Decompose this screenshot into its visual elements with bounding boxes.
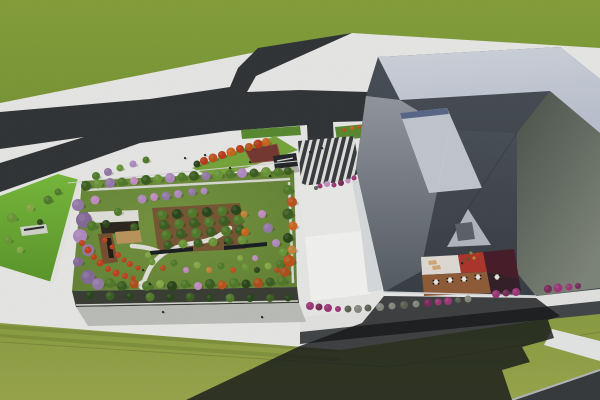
chair — [475, 278, 477, 280]
tree-highlight — [206, 280, 211, 285]
tree-highlight — [576, 284, 579, 287]
tree-highlight — [85, 247, 88, 250]
tree-highlight — [107, 293, 111, 297]
tree-highlight — [131, 178, 135, 182]
tree-highlight — [160, 221, 165, 226]
tree-highlight — [219, 152, 223, 156]
tree-highlight — [265, 263, 268, 266]
tree-highlight — [343, 129, 345, 131]
tree-highlight — [143, 157, 146, 160]
tree-highlight — [401, 302, 405, 306]
tree-highlight — [201, 188, 204, 191]
person — [269, 175, 271, 177]
tree-highlight — [106, 267, 109, 270]
tree-highlight — [278, 277, 283, 282]
tree-highlight — [336, 307, 339, 310]
tree-highlight — [456, 298, 459, 301]
tree-highlight — [275, 268, 278, 271]
tree-highlight — [201, 158, 205, 162]
tree-highlight — [228, 149, 232, 153]
person — [179, 248, 181, 250]
tree-highlight — [377, 304, 381, 308]
tree-highlight — [92, 255, 95, 258]
tree-highlight — [470, 252, 471, 253]
tree-highlight — [175, 220, 180, 225]
tree-highlight — [205, 218, 210, 223]
tree-highlight — [218, 207, 223, 212]
tree-highlight — [503, 290, 506, 293]
tree-highlight — [255, 268, 258, 271]
tree-highlight — [207, 228, 212, 233]
tree-highlight — [75, 231, 81, 237]
tree-highlight — [8, 214, 13, 219]
tree-highlight — [142, 176, 147, 181]
tree-highlight — [95, 181, 99, 185]
tree-highlight — [78, 214, 85, 221]
tree-highlight — [346, 179, 348, 181]
chair — [438, 283, 440, 285]
parasol-table — [461, 276, 468, 281]
tree-highlight — [365, 305, 368, 308]
tree-highlight — [74, 258, 79, 263]
tree-highlight — [203, 173, 207, 177]
tree-highlight — [166, 174, 171, 179]
pavilion-roof — [88, 210, 139, 223]
person — [309, 151, 311, 153]
tree-highlight — [467, 258, 468, 259]
tree-highlight — [307, 303, 311, 307]
chair — [466, 280, 468, 282]
person — [162, 311, 164, 313]
parasol-table — [433, 279, 440, 284]
tree-highlight — [227, 295, 231, 299]
tree-highlight — [222, 227, 227, 232]
courtyard-door — [455, 222, 475, 241]
tree-highlight — [103, 238, 105, 240]
tree-highlight — [236, 226, 241, 231]
tree-highlight — [345, 306, 348, 309]
tree-highlight — [162, 231, 167, 236]
chair — [447, 278, 449, 280]
tree-highlight — [285, 295, 288, 298]
tree-highlight — [254, 279, 259, 284]
tree-highlight — [513, 289, 517, 293]
tree-highlight — [80, 241, 83, 244]
tree-highlight — [318, 184, 320, 186]
tree-highlight — [477, 253, 478, 254]
tree-highlight — [127, 293, 131, 297]
tree-highlight — [130, 161, 133, 164]
tree-highlight — [139, 196, 143, 200]
tree-highlight — [179, 174, 183, 178]
chair — [461, 277, 463, 279]
tree-highlight — [246, 144, 250, 148]
tree-highlight — [157, 281, 161, 285]
tree-highlight — [288, 198, 293, 203]
tree-highlight — [194, 161, 197, 164]
tree-highlight — [273, 240, 277, 244]
tree-highlight — [339, 181, 342, 184]
tree-highlight — [94, 280, 99, 285]
facade-ground-shadow — [76, 303, 306, 326]
person — [184, 157, 186, 159]
tree-highlight — [195, 283, 199, 287]
tree-highlight — [45, 197, 49, 201]
tree-highlight — [267, 279, 271, 283]
person — [249, 161, 251, 163]
tree-highlight — [262, 168, 267, 173]
tree-highlight — [238, 169, 243, 174]
tree-highlight — [173, 210, 178, 215]
tree-highlight — [97, 260, 100, 263]
tree-highlight — [116, 253, 119, 256]
tree-highlight — [5, 237, 9, 241]
tree-highlight — [83, 272, 89, 278]
parasol-table — [494, 274, 501, 279]
tree-highlight — [566, 284, 569, 287]
tree-highlight — [146, 253, 149, 256]
tree-highlight — [210, 239, 214, 243]
tree-highlight — [119, 179, 123, 183]
tree-highlight — [555, 285, 559, 289]
tree-highlight — [225, 238, 229, 242]
tree-highlight — [241, 211, 244, 214]
tree-highlight — [242, 229, 246, 233]
tree-highlight — [247, 295, 251, 299]
tree-highlight — [242, 264, 245, 267]
tree-highlight — [275, 169, 279, 173]
tree-highlight — [284, 234, 289, 239]
tree-highlight — [284, 210, 289, 215]
tree-highlight — [315, 187, 317, 189]
person — [261, 316, 263, 318]
tree-highlight — [110, 245, 112, 247]
tree-highlight — [155, 176, 159, 180]
chair — [438, 280, 440, 282]
tree-highlight — [88, 222, 93, 227]
tree-highlight — [187, 294, 191, 298]
tree-highlight — [131, 281, 135, 285]
low-building-roof-b — [305, 231, 370, 301]
tree-highlight — [55, 189, 58, 192]
tree-highlight — [147, 294, 151, 298]
person — [321, 147, 323, 149]
tree-highlight — [280, 249, 284, 253]
tree-highlight — [237, 146, 241, 150]
tree-highlight — [122, 258, 124, 260]
chair — [480, 275, 482, 277]
chair — [447, 281, 449, 283]
tree-highlight — [210, 155, 214, 159]
tree-highlight — [180, 241, 184, 245]
tree-highlight — [195, 240, 199, 244]
tree-highlight — [493, 291, 497, 295]
tree-highlight — [227, 171, 231, 175]
chair — [499, 278, 501, 280]
tree-highlight — [175, 191, 179, 195]
tree-highlight — [465, 296, 468, 299]
tree-highlight — [106, 179, 111, 184]
tree-highlight — [413, 301, 416, 304]
tree-highlight — [203, 208, 208, 213]
render-viewport — [0, 0, 600, 400]
aerial-render — [0, 0, 600, 400]
person — [229, 167, 231, 169]
tree-highlight — [92, 197, 96, 201]
tree-highlight — [194, 262, 197, 265]
tree-highlight — [219, 282, 223, 286]
tree-highlight — [131, 224, 135, 228]
tree-highlight — [27, 205, 31, 209]
tree-highlight — [218, 263, 221, 266]
person — [149, 283, 151, 285]
chair — [480, 278, 482, 280]
tree-highlight — [352, 176, 354, 178]
chair — [452, 281, 454, 283]
tree-highlight — [435, 299, 438, 302]
tree-highlight — [238, 256, 241, 259]
tree-highlight — [163, 193, 167, 197]
parasol-table — [475, 274, 482, 279]
tree-highlight — [285, 168, 289, 172]
tree-highlight — [161, 266, 164, 269]
tree-highlight — [425, 300, 429, 304]
chair — [475, 275, 477, 277]
tree-highlight — [103, 221, 107, 225]
tree-highlight — [167, 294, 171, 298]
tree-highlight — [332, 183, 334, 185]
tree-highlight — [17, 247, 20, 250]
chair — [494, 275, 496, 277]
tree-highlight — [355, 306, 359, 310]
chair — [494, 278, 496, 280]
tree-highlight — [87, 292, 91, 296]
tree-highlight — [168, 282, 173, 287]
tree-highlight — [93, 173, 97, 177]
tree-highlight — [207, 295, 211, 299]
tree-highlight — [445, 298, 449, 302]
tree-highlight — [136, 266, 138, 268]
tree-highlight — [277, 261, 281, 265]
tree-highlight — [149, 259, 152, 262]
tree-highlight — [171, 260, 174, 263]
tree-highlight — [281, 268, 286, 273]
chair — [461, 280, 463, 282]
main-building — [356, 47, 600, 296]
tree-highlight — [118, 282, 123, 287]
chair — [433, 280, 435, 282]
tree-highlight — [285, 257, 290, 262]
tree-highlight — [151, 194, 155, 198]
tree-highlight — [284, 186, 289, 191]
tree-highlight — [290, 223, 294, 227]
tree-highlight — [74, 201, 79, 206]
tree-highlight — [105, 169, 109, 173]
tree-highlight — [182, 281, 186, 285]
chair — [433, 283, 435, 285]
parasol-table — [447, 277, 454, 282]
tree-highlight — [188, 209, 193, 214]
tree-highlight — [177, 230, 182, 235]
tree-highlight — [259, 211, 263, 215]
tree-highlight — [351, 127, 353, 129]
tree-highlight — [389, 303, 392, 306]
tree-highlight — [131, 276, 133, 278]
tree-highlight — [545, 286, 549, 290]
chair — [499, 275, 501, 277]
tree-highlight — [165, 242, 169, 246]
tree-highlight — [117, 165, 120, 168]
tree-highlight — [325, 305, 329, 309]
person — [224, 242, 226, 244]
tree-highlight — [106, 279, 111, 284]
tree-highlight — [316, 304, 319, 307]
tree-highlight — [325, 182, 328, 185]
tree-highlight — [82, 182, 87, 187]
tree-highlight — [243, 281, 247, 285]
tree-highlight — [473, 257, 474, 258]
pavilion-deck — [115, 230, 142, 244]
tree-highlight — [220, 217, 225, 222]
tree-highlight — [267, 295, 271, 299]
tree-highlight — [255, 141, 259, 145]
tree-highlight — [231, 268, 234, 271]
courtyard-floor-white — [421, 255, 461, 275]
chair — [466, 277, 468, 279]
person — [461, 262, 463, 264]
tree-highlight — [214, 171, 219, 176]
tree-highlight — [289, 247, 293, 251]
person — [204, 154, 206, 156]
tree-highlight — [253, 256, 256, 259]
tree-highlight — [143, 282, 148, 287]
tree-highlight — [230, 279, 235, 284]
tree-highlight — [263, 139, 267, 143]
tree-highlight — [192, 229, 197, 234]
tree-highlight — [128, 262, 131, 265]
tree-highlight — [232, 206, 237, 211]
tree-highlight — [251, 170, 255, 174]
tree-highlight — [239, 237, 243, 241]
tree-highlight — [123, 274, 126, 277]
tree-highlight — [207, 268, 210, 271]
tree-highlight — [190, 219, 195, 224]
tree-highlight — [358, 126, 360, 128]
low-building-roof-a — [299, 181, 361, 237]
tree-highlight — [234, 216, 239, 221]
chair — [452, 278, 454, 280]
tree-highlight — [115, 209, 119, 213]
tree-highlight — [158, 211, 163, 216]
tree-highlight — [264, 224, 269, 229]
tree-highlight — [190, 172, 195, 177]
tree-highlight — [38, 220, 41, 223]
person — [142, 269, 144, 271]
tree-highlight — [189, 189, 193, 193]
tree-highlight — [113, 270, 116, 273]
tree-highlight — [184, 268, 187, 271]
